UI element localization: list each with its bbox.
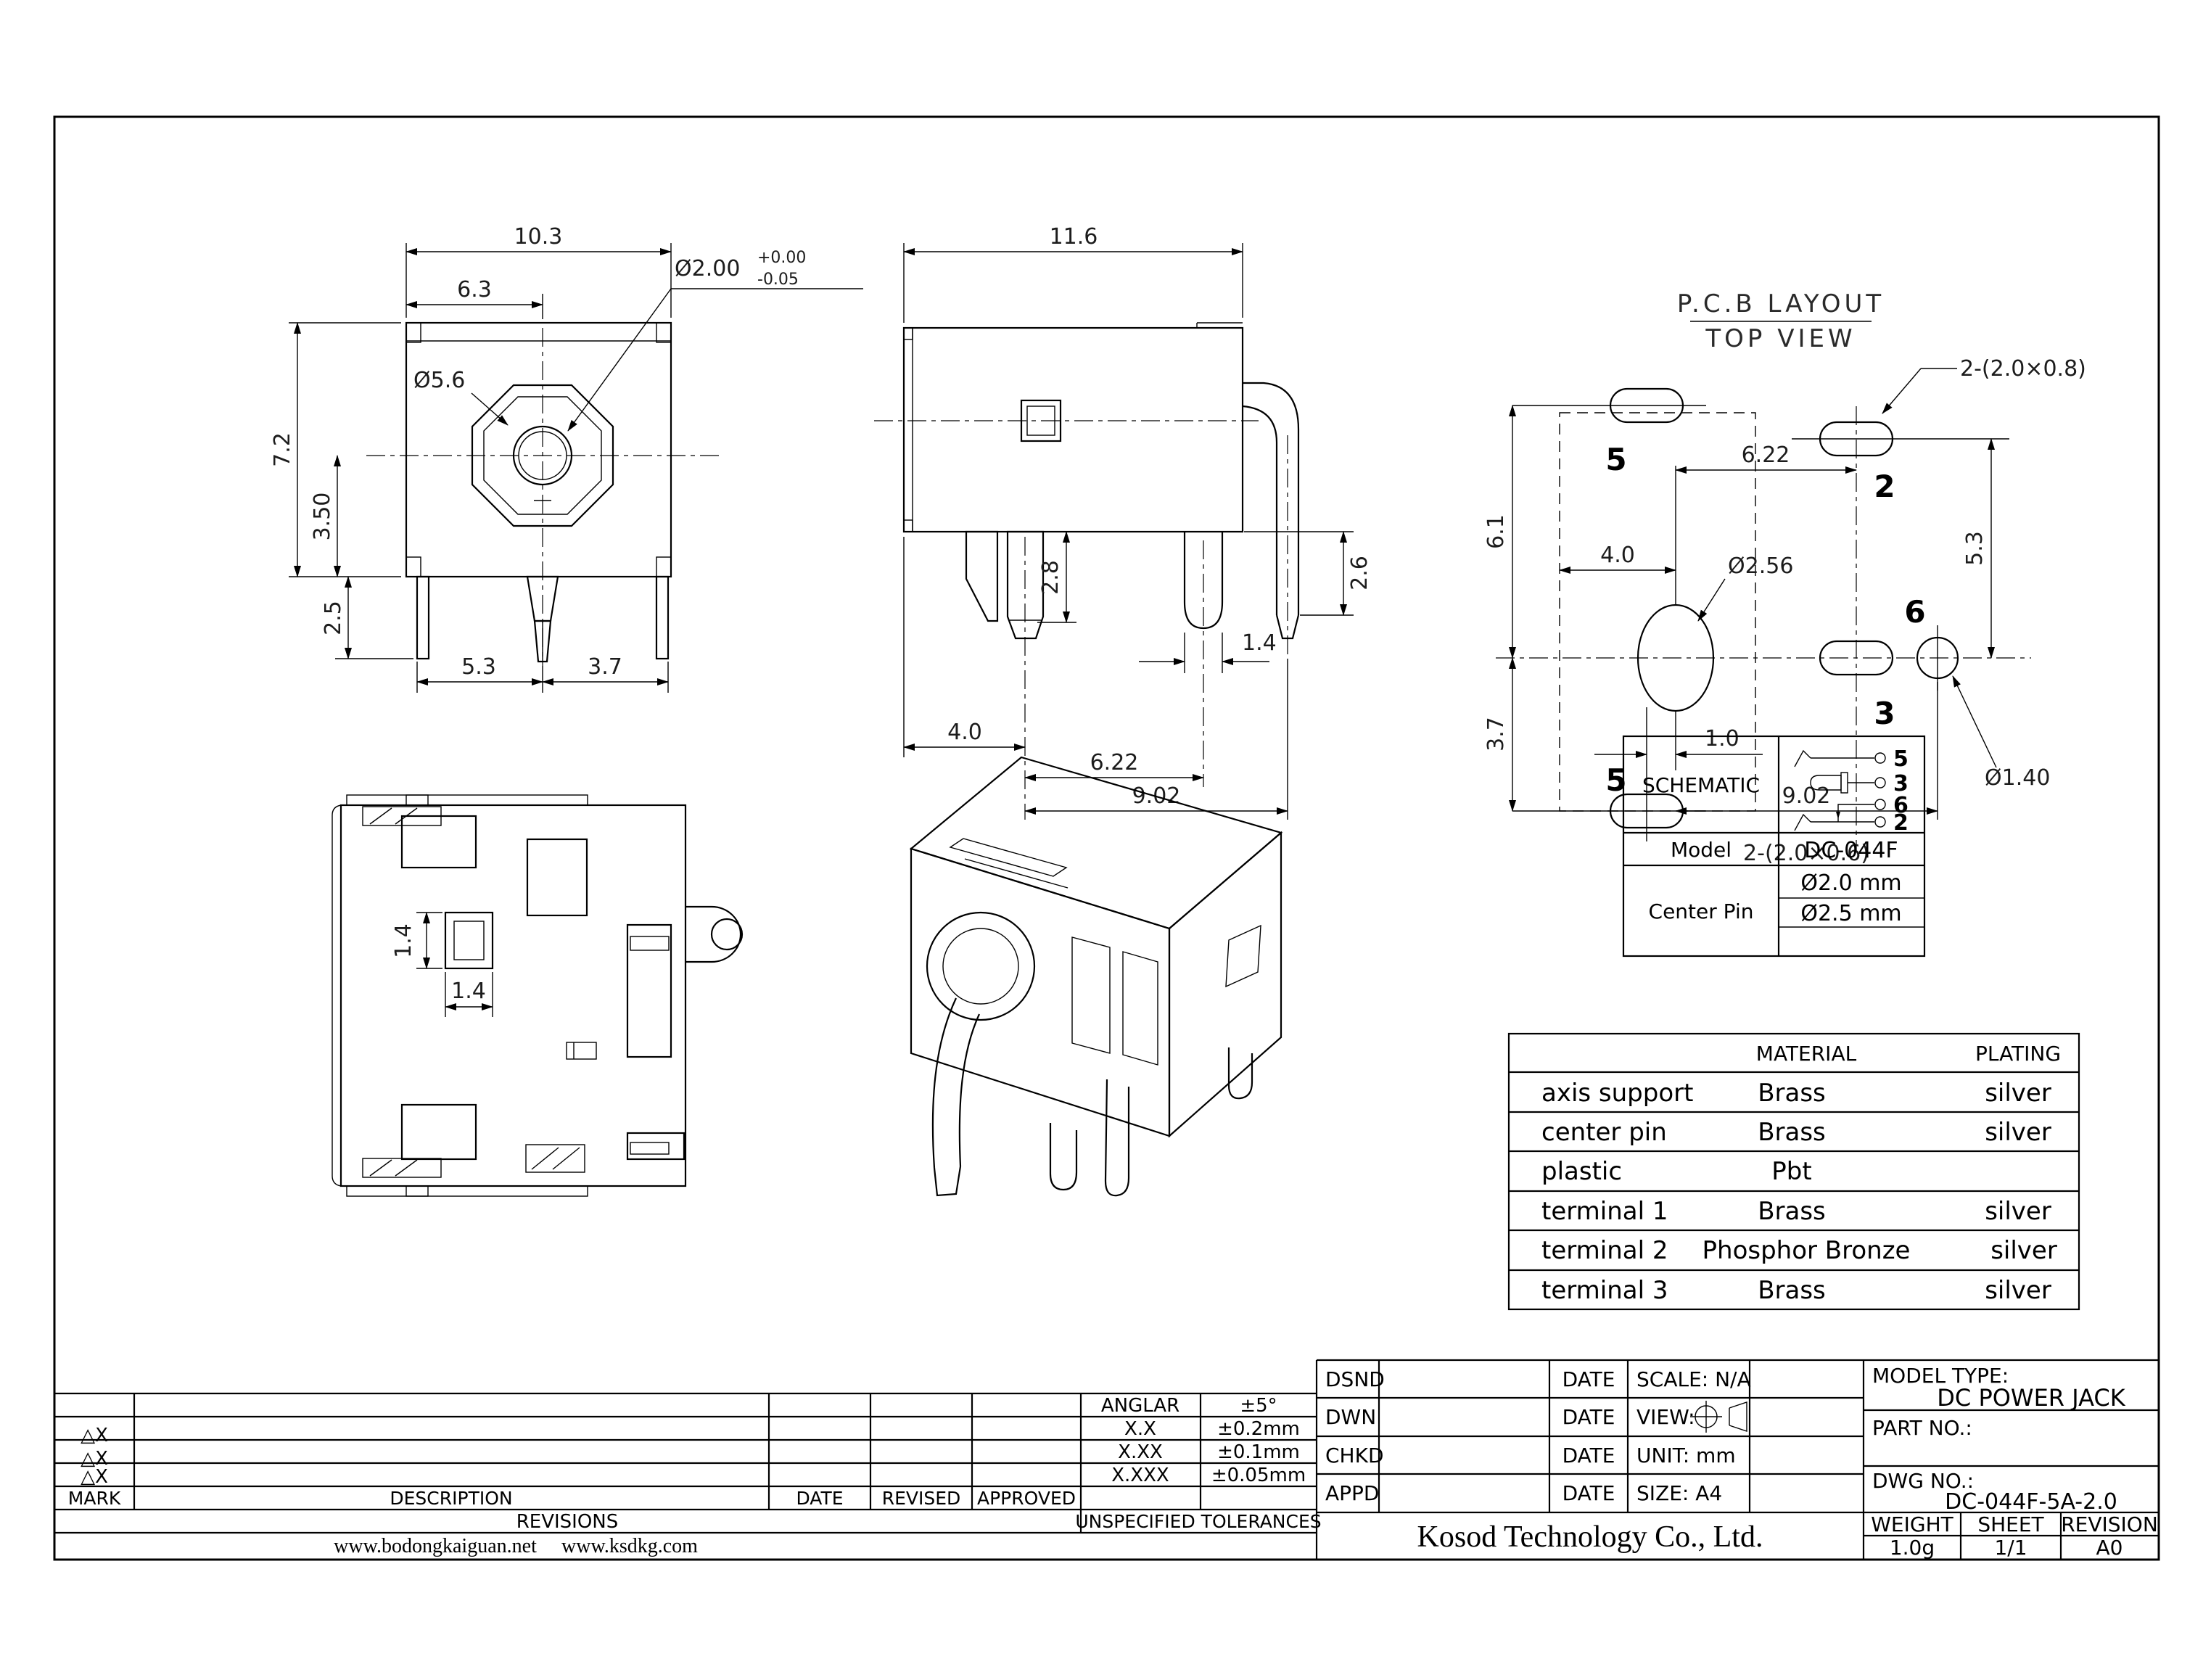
front-dim-center-height: 3.50 [310, 493, 335, 541]
weight-value: 1.0g [1890, 1536, 1935, 1560]
tolerance-name: X.XX [1118, 1441, 1163, 1463]
schematic-pin-top: 5 [1893, 746, 1909, 772]
projection-symbol-icon [1690, 1401, 1747, 1433]
material-row-plating: silver [1985, 1276, 2051, 1305]
mark-symbol: △X [81, 1466, 108, 1488]
center-pin-label: Center Pin [1649, 899, 1754, 923]
drawing-sheet: 10.3 6.3 Ø2.00 +0.00 -0.05 Ø5.6 7.2 3.50… [0, 0, 2211, 1680]
tolerance-name: X.X [1124, 1418, 1156, 1440]
material-row-material: Pbt [1771, 1157, 1811, 1186]
material-row-material: Brass [1758, 1197, 1826, 1226]
revision-value: A0 [2096, 1536, 2123, 1560]
tolerance-value: ±5° [1240, 1395, 1277, 1417]
sheet-value: 1/1 [1994, 1536, 2027, 1560]
material-row-plating: silver [1990, 1236, 2057, 1265]
material-row-material: Brass [1758, 1118, 1826, 1147]
pcb-dim-hole-offset: 4.0 [1600, 543, 1635, 568]
center-pin-value-1: Ø2.0 mm [1800, 870, 1901, 896]
pcb-dim-pad-offset: 6.22 [1742, 442, 1790, 468]
revisions-header: REVISIONS [516, 1511, 619, 1533]
dwg-no-value: DC-044F-5A-2.0 [1945, 1489, 2117, 1515]
isometric-view [911, 757, 1281, 1195]
side-dim-mid-offset: 6.22 [1090, 750, 1139, 775]
pcb-dim-pad-vertical: 5.3 [1962, 531, 1988, 566]
material-row-plating: silver [1985, 1118, 2051, 1147]
pcb-title: P.C.B LAYOUT [1677, 289, 1885, 318]
model-value: DC-044F [1804, 838, 1898, 863]
website-left: www.bodongkaiguan.net [334, 1535, 537, 1557]
titleblock-row-label: CHKD [1325, 1444, 1384, 1467]
front-pin-dia: Ø2.00 [675, 256, 740, 281]
material-row-part: terminal 2 [1541, 1236, 1668, 1265]
material-row-material: Brass [1758, 1079, 1826, 1108]
schematic-pin-bottom: 2 [1893, 810, 1909, 836]
material-row-plating: silver [1985, 1197, 2051, 1226]
pcb-pad-top-right: 2 [1874, 469, 1895, 504]
material-row-part: center pin [1541, 1118, 1667, 1147]
tolerance-value: ±0.2mm [1217, 1418, 1300, 1440]
titleblock-row-date: DATE [1562, 1481, 1615, 1505]
pcb-dim-total: 9.02 [1782, 783, 1831, 809]
pcb-dim-upper: 6.1 [1483, 514, 1509, 549]
side-dim-mid-pin-width: 1.4 [1242, 630, 1277, 656]
titleblock-row-date: DATE [1562, 1444, 1615, 1467]
tolerances-header: UNSPECIFIED TOLERANCES [1075, 1511, 1321, 1532]
date-header: DATE [796, 1488, 843, 1509]
titleblock-row-date: DATE [1562, 1367, 1615, 1391]
side-dim-right-pin: 2.6 [1347, 556, 1372, 590]
part-no-label: PART NO.: [1872, 1416, 1972, 1440]
front-dim-inner-width: 6.3 [457, 277, 492, 302]
pcb-layout-view: P.C.B LAYOUT TOP VIEW 6.1 3.7 4.0 6.22 5… [1483, 289, 2086, 866]
titleblock-row-label: DWN [1325, 1405, 1376, 1429]
titleblock-row-label: APPD [1325, 1481, 1379, 1505]
material-table: MATERIAL PLATING axis support Brass silv… [1509, 1034, 2079, 1309]
tolerance-name: ANGLAR [1101, 1395, 1179, 1417]
material-row-material: Brass [1758, 1276, 1826, 1305]
front-pin-tol-plus: +0.00 [757, 249, 806, 267]
front-dim-bottom-left: 5.3 [461, 654, 496, 680]
material-row-part: axis support [1541, 1079, 1693, 1108]
plating-header: PLATING [1975, 1042, 2061, 1066]
front-pin-tol-minus: -0.05 [757, 271, 799, 289]
side-view: 11.6 2.8 2.6 1.4 4.0 6.22 9.02 [874, 224, 1372, 820]
pcb-pad-right: 6 [1904, 594, 1925, 630]
pcb-dim-lower: 3.7 [1483, 717, 1509, 752]
company-name: Kosod Technology Co., Ltd. [1417, 1520, 1763, 1554]
approved-header: APPROVED [977, 1488, 1076, 1509]
pcb-pad-top-left: 5 [1605, 442, 1626, 477]
mark-header: MARK [68, 1488, 121, 1509]
pcb-pad-middle: 3 [1874, 696, 1895, 731]
bottom-view: 1.4 1.4 [332, 795, 742, 1196]
material-row-part: plastic [1541, 1157, 1622, 1186]
size-label: SIZE: A4 [1636, 1481, 1722, 1505]
revised-header: REVISED [882, 1488, 961, 1509]
bottom-dim-square-h: 1.4 [391, 923, 416, 958]
pcb-hole-dia: Ø2.56 [1728, 553, 1793, 579]
front-view: 10.3 6.3 Ø2.00 +0.00 -0.05 Ø5.6 7.2 3.50… [270, 224, 863, 693]
tolerance-value: ±0.05mm [1211, 1465, 1306, 1486]
material-row-part: terminal 3 [1541, 1276, 1668, 1305]
title-block: DSND DATE DWN DATE CHKD DATE APPD DATE S… [1317, 1360, 2159, 1560]
tolerance-name: X.XXX [1111, 1465, 1169, 1486]
front-barrel-dia: Ø5.6 [413, 368, 465, 393]
front-dim-leg: 2.5 [321, 601, 346, 635]
pcb-note-top-pads: 2-(2.0×0.8) [1960, 356, 2086, 382]
model-type-value: DC POWER JACK [1937, 1384, 2125, 1412]
pcb-subtitle: TOP VIEW [1705, 324, 1856, 353]
side-dim-front-pin: 2.8 [1038, 560, 1063, 595]
front-dim-bottom-right: 3.7 [588, 654, 622, 680]
side-dim-width: 11.6 [1050, 224, 1098, 250]
sheet-label: SHEET [1977, 1512, 2044, 1536]
bottom-dim-square-w: 1.4 [451, 979, 486, 1004]
side-dim-front-offset: 4.0 [947, 720, 982, 745]
material-row-part: terminal 1 [1541, 1197, 1668, 1226]
website-right: www.ksdkg.com [561, 1535, 698, 1557]
material-row-plating: silver [1985, 1079, 2051, 1108]
tolerance-value: ±0.1mm [1217, 1441, 1300, 1463]
pcb-pin6-hole-dia: Ø1.40 [1985, 765, 2050, 791]
revision-label: REVISION [2061, 1512, 2158, 1536]
revisions-table: △X △X △X MARK DESCRIPTION DATE REVISED A… [54, 1393, 1322, 1557]
titleblock-row-date: DATE [1562, 1405, 1615, 1429]
material-header: MATERIAL [1756, 1042, 1857, 1066]
center-pin-value-2: Ø2.5 mm [1800, 901, 1901, 926]
weight-label: WEIGHT [1871, 1512, 1953, 1536]
front-dim-height: 7.2 [270, 432, 295, 467]
description-header: DESCRIPTION [390, 1488, 512, 1509]
schematic-title: SCHEMATIC [1642, 773, 1760, 797]
front-dim-width: 10.3 [514, 224, 563, 250]
unit-label: UNIT: mm [1636, 1444, 1736, 1467]
scale-label: SCALE: N/A [1636, 1367, 1751, 1391]
pcb-dim-pin-offset: 1.0 [1705, 726, 1739, 752]
view-label: VIEW: [1636, 1405, 1695, 1429]
titleblock-row-label: DSND [1325, 1367, 1385, 1391]
mark-symbol: △X [81, 1425, 108, 1446]
material-row-material: Phosphor Bronze [1702, 1236, 1911, 1265]
model-label: Model [1671, 838, 1732, 862]
drawing-canvas: 10.3 6.3 Ø2.00 +0.00 -0.05 Ø5.6 7.2 3.50… [0, 0, 2211, 1680]
